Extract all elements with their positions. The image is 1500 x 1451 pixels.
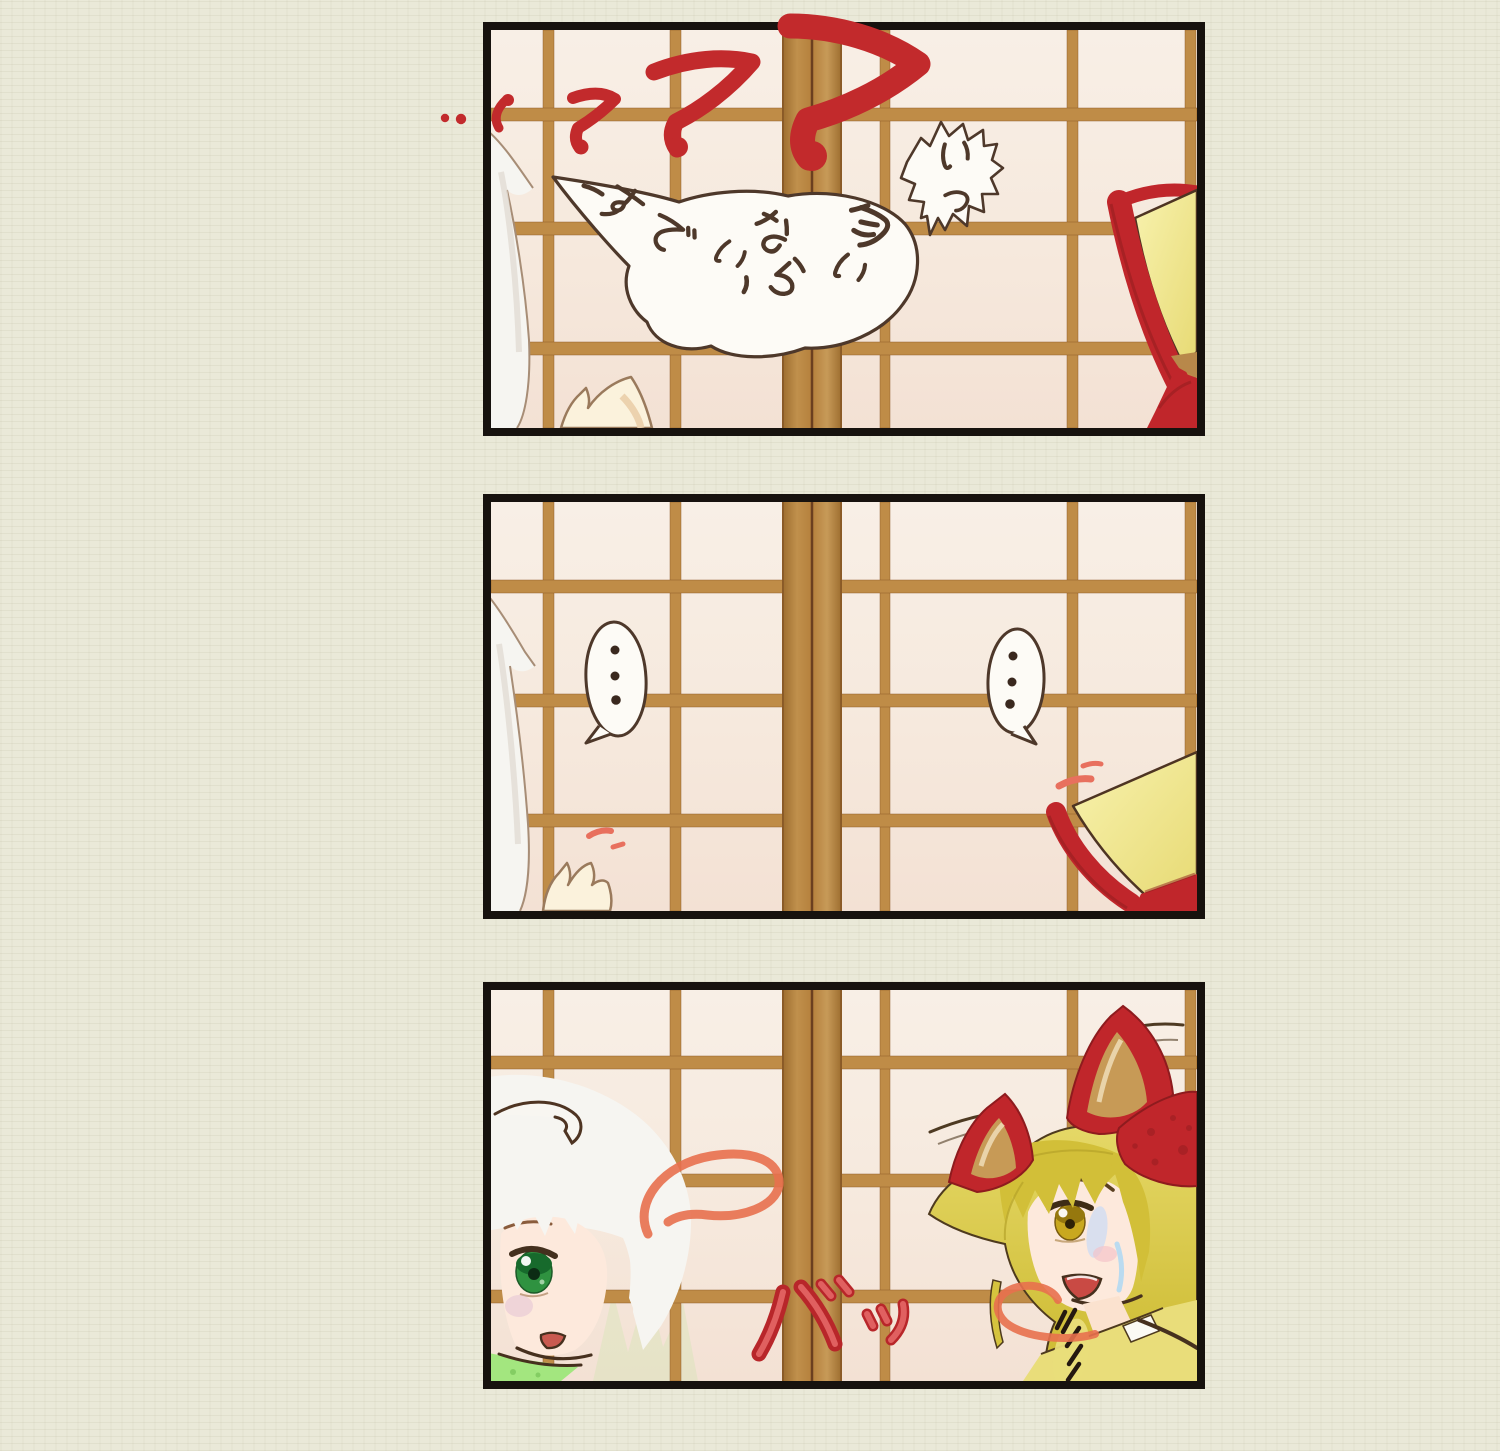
blush bbox=[1093, 1246, 1117, 1262]
panel-2-scene: ・・・ ・・・ bbox=[491, 502, 1197, 911]
comic-page: 匂いなら すでに… いっ bbox=[0, 0, 1500, 1451]
comic-panel-3: バッ bbox=[483, 982, 1205, 1389]
motion-tick bbox=[613, 844, 623, 847]
panel-3-scene: バッ bbox=[491, 990, 1197, 1381]
comic-panel-2: ・・・ ・・・ bbox=[483, 494, 1205, 919]
shoji-center-stile bbox=[782, 502, 842, 911]
panel-1-scene: 匂いなら すでに… いっ bbox=[491, 30, 1197, 428]
motion-tick bbox=[1083, 763, 1101, 766]
blush bbox=[505, 1295, 533, 1317]
comic-panel-1: 匂いなら すでに… いっ bbox=[483, 22, 1205, 436]
